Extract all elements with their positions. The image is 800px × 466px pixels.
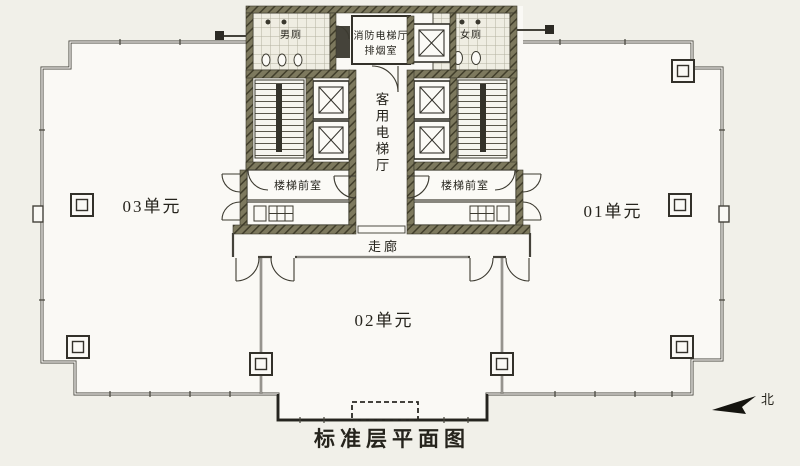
hall-opening-threshold xyxy=(358,226,405,233)
unit-02-label: 02单元 xyxy=(355,311,414,330)
staircase-right xyxy=(458,80,507,158)
north-arrow-icon: 北 xyxy=(712,392,774,414)
north-label: 北 xyxy=(761,392,774,407)
staircase-left xyxy=(255,80,304,158)
womens-toilet-label: 女厕 xyxy=(460,28,482,41)
unit-01-label: 01单元 xyxy=(584,202,643,221)
drawing-title: 标准层平面图 xyxy=(314,427,470,451)
floor-plan-page: 男厕 女厕 消防电梯厅 排烟室 客用电梯厅 楼梯前室 楼梯前室 走廊 03单元 … xyxy=(0,0,800,466)
duct-shaft xyxy=(336,26,350,58)
smoke-room-label-line1: 消防电梯厅 xyxy=(354,29,409,42)
left-wall-notch xyxy=(33,206,43,222)
vestibule-right-label: 楼梯前室 xyxy=(441,178,489,192)
unit-03-label: 03单元 xyxy=(123,197,182,216)
vestibule-left-label: 楼梯前室 xyxy=(274,178,322,192)
corridor-label: 走廊 xyxy=(368,239,400,254)
right-wall-notch xyxy=(719,206,729,222)
elevator-hall-label: 客用电梯厅 xyxy=(374,91,390,175)
smoke-room-label-line2: 排烟室 xyxy=(365,44,398,57)
fire-elevator-shaft xyxy=(413,24,450,62)
mens-toilet-label: 男厕 xyxy=(280,29,302,41)
floor-plan-drawing: 男厕 女厕 消防电梯厅 排烟室 客用电梯厅 楼梯前室 楼梯前室 走廊 03单元 … xyxy=(0,0,800,466)
